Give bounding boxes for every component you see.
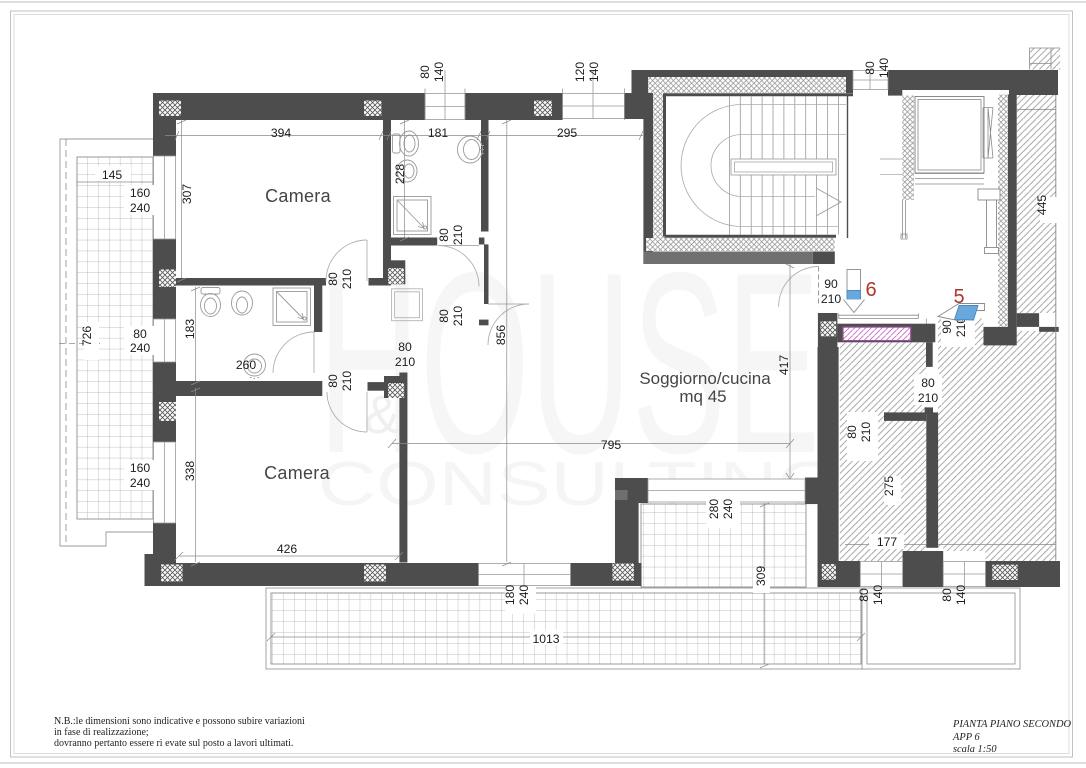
svg-text:6: 6 (865, 279, 876, 301)
svg-text:210: 210 (340, 371, 354, 392)
svg-text:177: 177 (877, 535, 898, 549)
svg-text:183: 183 (183, 319, 197, 340)
svg-text:80: 80 (398, 340, 412, 354)
svg-text:120: 120 (573, 62, 587, 83)
svg-text:80: 80 (845, 425, 859, 439)
svg-text:210: 210 (340, 269, 354, 290)
svg-text:240: 240 (130, 201, 151, 215)
svg-text:140: 140 (954, 585, 968, 606)
svg-text:80: 80 (921, 376, 935, 390)
svg-text:181: 181 (428, 126, 449, 140)
svg-text:80: 80 (437, 309, 451, 323)
svg-text:140: 140 (871, 585, 885, 606)
svg-text:160: 160 (130, 186, 151, 200)
svg-text:210: 210 (451, 306, 465, 327)
svg-text:856: 856 (494, 325, 508, 346)
svg-text:160: 160 (130, 461, 151, 475)
svg-text:in fase di realizzazione;: in fase di realizzazione; (54, 727, 149, 738)
svg-text:80: 80 (857, 588, 871, 602)
svg-text:scala 1:50: scala 1:50 (953, 744, 997, 755)
svg-text:Camera: Camera (265, 186, 332, 206)
svg-text:90: 90 (940, 320, 954, 334)
svg-text:394: 394 (271, 126, 292, 140)
svg-text:240: 240 (130, 341, 151, 355)
svg-text:280: 280 (707, 499, 721, 520)
svg-text:426: 426 (277, 542, 298, 556)
svg-text:Soggiorno/cucina: Soggiorno/cucina (639, 369, 771, 388)
svg-text:140: 140 (587, 62, 601, 83)
svg-text:240: 240 (721, 499, 735, 520)
svg-text:145: 145 (102, 168, 123, 182)
svg-text:210: 210 (821, 292, 842, 306)
svg-text:N.B.:le dimensioni sono indica: N.B.:le dimensioni sono indicative e pos… (54, 716, 305, 727)
svg-text:90: 90 (824, 277, 838, 291)
svg-text:140: 140 (877, 58, 891, 79)
svg-text:417: 417 (777, 355, 791, 376)
svg-text:140: 140 (432, 62, 446, 83)
svg-text:795: 795 (601, 438, 622, 452)
svg-text:210: 210 (918, 391, 939, 405)
svg-text:PIANTA PIANO SECONDO: PIANTA PIANO SECONDO (952, 719, 1071, 730)
svg-text:80: 80 (326, 272, 340, 286)
svg-text:180: 180 (503, 585, 517, 606)
svg-text:726: 726 (80, 326, 94, 347)
svg-text:445: 445 (1035, 195, 1049, 216)
svg-text:80: 80 (326, 374, 340, 388)
svg-text:260: 260 (236, 358, 257, 372)
svg-text:Camera: Camera (264, 463, 331, 483)
svg-text:338: 338 (183, 461, 197, 482)
svg-text:210: 210 (395, 355, 416, 369)
svg-text:80: 80 (133, 327, 147, 341)
svg-text:dovranno pertanto essere ri ev: dovranno pertanto essere ri evate sul po… (54, 738, 293, 749)
svg-text:210: 210 (859, 422, 873, 443)
svg-text:APP 6: APP 6 (952, 732, 980, 743)
svg-text:mq 45: mq 45 (679, 387, 726, 406)
svg-text:309: 309 (754, 566, 768, 587)
svg-text:275: 275 (882, 476, 896, 497)
svg-text:80: 80 (418, 65, 432, 79)
svg-text:240: 240 (517, 585, 531, 606)
svg-text:307: 307 (180, 184, 194, 205)
svg-text:80: 80 (437, 228, 451, 242)
svg-text:210: 210 (451, 225, 465, 246)
svg-text:1013: 1013 (532, 632, 559, 646)
svg-text:80: 80 (863, 61, 877, 75)
svg-text:228: 228 (393, 164, 407, 185)
svg-text:80: 80 (940, 588, 954, 602)
svg-text:295: 295 (557, 126, 578, 140)
svg-text:240: 240 (130, 476, 151, 490)
